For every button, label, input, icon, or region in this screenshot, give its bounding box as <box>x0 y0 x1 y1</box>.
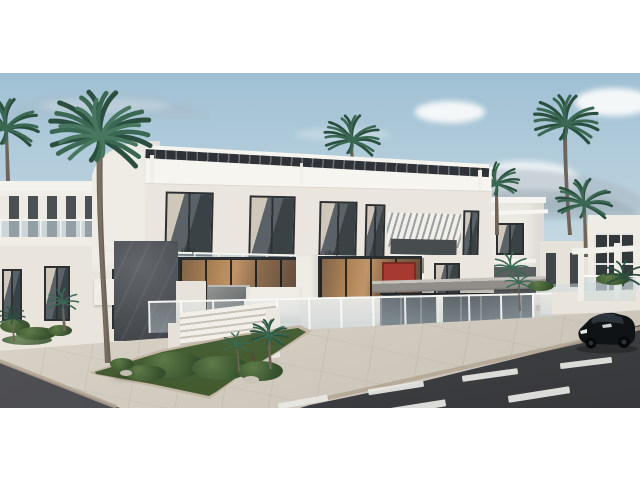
architectural-render-scene: shop shop <box>0 73 640 408</box>
palm-layer-front <box>0 73 640 408</box>
palm-plant-front-left <box>48 289 79 332</box>
palm-tree-island <box>249 316 289 369</box>
palm-plant-right-edge <box>605 260 640 286</box>
letterbox-bottom <box>0 408 640 480</box>
palm-plant-front-left-2 <box>0 306 25 341</box>
palm-plant-right-sidewalk <box>505 270 533 311</box>
palm-tree-large-left <box>44 81 159 363</box>
palm-tree-island-small <box>223 332 251 371</box>
architectural-render-image: shop shop <box>0 0 640 480</box>
letterbox-top <box>0 0 640 73</box>
